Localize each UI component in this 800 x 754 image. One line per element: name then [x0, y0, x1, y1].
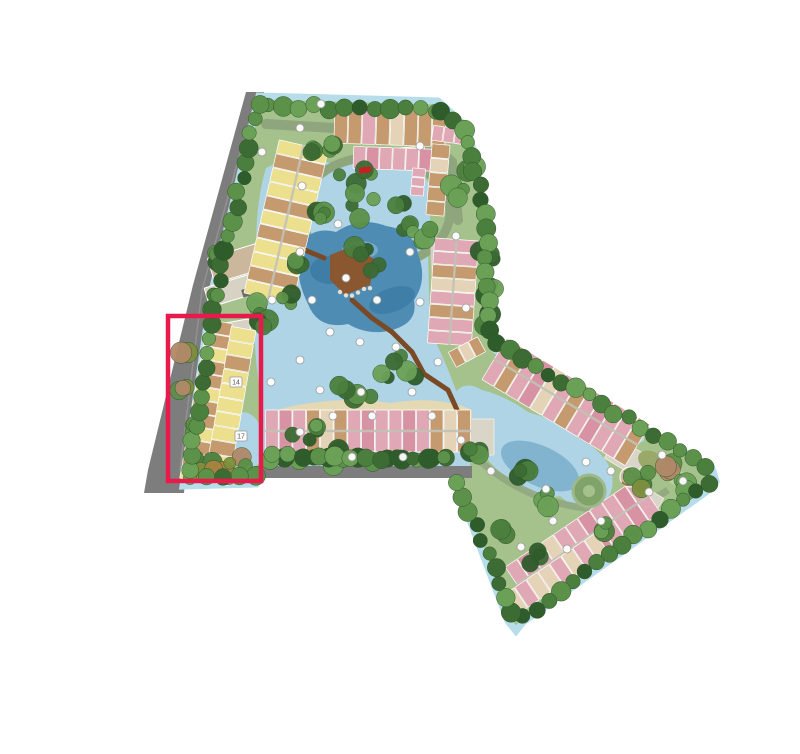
tree	[387, 197, 404, 214]
tree	[406, 452, 420, 466]
unit-marker-dot	[348, 453, 356, 461]
tree	[528, 358, 543, 373]
tree	[380, 99, 400, 119]
unit-marker-label: 14	[232, 379, 240, 386]
tree	[513, 464, 527, 478]
tree	[373, 451, 391, 469]
tree	[175, 380, 191, 396]
tree	[230, 199, 247, 216]
tree	[255, 318, 272, 335]
tree	[214, 273, 229, 288]
unit-marker-dot	[582, 458, 590, 466]
tree	[202, 332, 216, 346]
unit-marker-dot	[392, 343, 400, 351]
site-plan-canvas: 1417	[0, 0, 800, 754]
tree	[294, 449, 312, 467]
tree	[448, 474, 464, 490]
tree	[350, 208, 370, 228]
unit-marker-dot	[416, 142, 424, 150]
tree	[310, 419, 323, 432]
tree	[604, 405, 622, 423]
unit-marker-dot	[368, 412, 376, 420]
unit-marker-dot	[296, 428, 304, 436]
tree	[479, 234, 497, 252]
tree	[398, 100, 413, 115]
tree	[314, 212, 327, 225]
unit-marker-dot	[296, 124, 304, 132]
tree	[448, 188, 468, 208]
tree	[529, 602, 545, 618]
tree	[497, 588, 516, 607]
tree	[529, 543, 546, 560]
tree	[239, 139, 258, 158]
tree	[264, 446, 280, 462]
tree	[357, 449, 375, 467]
tree	[214, 241, 234, 261]
building-unit	[432, 125, 444, 141]
unit-marker-dot	[487, 467, 495, 475]
tree	[491, 520, 511, 540]
unit-marker-dot	[308, 296, 316, 304]
unit-marker-dot	[296, 356, 304, 364]
unit-marker-dot	[645, 488, 653, 496]
tree	[492, 576, 506, 590]
tree	[353, 246, 369, 262]
tree	[640, 465, 655, 480]
unit-marker-dot	[542, 485, 550, 493]
building-unit	[392, 148, 405, 170]
unit-marker-dot	[549, 517, 557, 525]
unit-marker-dot	[607, 467, 615, 475]
unit-marker-dot	[452, 232, 460, 240]
tree	[276, 292, 288, 304]
unit-marker-dot	[373, 296, 381, 304]
roundabout-center	[583, 485, 595, 497]
tree	[461, 135, 475, 149]
tree	[324, 136, 341, 153]
unit-marker-dot	[462, 304, 470, 312]
tree	[701, 475, 718, 492]
tree	[697, 458, 714, 475]
tree	[413, 100, 428, 115]
building-unit	[426, 201, 445, 216]
tree	[367, 192, 381, 206]
tree	[290, 100, 307, 117]
unit-marker-dot	[457, 436, 465, 444]
tree	[238, 171, 252, 185]
unit-marker-dot	[679, 477, 687, 485]
tree	[577, 564, 592, 579]
tree	[345, 184, 364, 203]
unit-marker-dot	[329, 412, 337, 420]
building-unit	[406, 148, 419, 170]
tree	[541, 368, 555, 382]
tree	[537, 496, 558, 517]
unit-marker-dot	[408, 388, 416, 396]
unit-marker-dot	[298, 182, 306, 190]
unit-marker-dot	[434, 358, 442, 366]
building-unit	[410, 186, 424, 196]
site-plan-figure: 1417	[0, 0, 800, 754]
unit-marker-dot	[316, 386, 324, 394]
tree	[655, 456, 676, 477]
unit-marker-dot	[658, 451, 666, 459]
unit-marker-dot	[428, 412, 436, 420]
unit-marker-dot	[416, 298, 424, 306]
building-unit	[430, 158, 449, 173]
tree	[325, 446, 345, 466]
tree	[248, 112, 262, 126]
unit-marker-dot	[357, 388, 365, 396]
tree	[422, 221, 438, 237]
tree	[210, 288, 224, 302]
tree	[280, 446, 296, 462]
unit-marker-dot	[597, 517, 605, 525]
tree	[195, 375, 211, 391]
tree	[437, 451, 450, 464]
tree	[200, 346, 214, 360]
unit-marker-dot	[296, 248, 304, 256]
tree	[251, 95, 269, 113]
building-unit	[379, 147, 392, 169]
tree	[352, 100, 367, 115]
unit-marker-dot	[406, 248, 414, 256]
building-unit	[411, 177, 425, 187]
tree	[688, 484, 703, 499]
tree	[303, 144, 320, 161]
tree	[419, 449, 439, 469]
tree	[473, 533, 487, 547]
tree	[170, 342, 191, 363]
unit-marker-dot	[317, 100, 325, 108]
tree	[566, 378, 586, 398]
tree	[330, 376, 349, 395]
building-unit	[431, 144, 450, 159]
unit-marker-dot	[267, 378, 275, 386]
unit-marker: 17	[235, 431, 247, 441]
unit-marker-dot	[258, 148, 266, 156]
tree	[385, 353, 402, 370]
unit-marker-dot	[517, 543, 525, 551]
tree	[487, 558, 505, 576]
tree	[191, 403, 209, 421]
tree	[483, 547, 497, 561]
unit-marker-dot	[399, 453, 407, 461]
tree	[228, 183, 245, 200]
tree	[363, 263, 379, 279]
unit-marker-dot	[326, 328, 334, 336]
unit-marker-dot	[268, 296, 276, 304]
building-unit	[443, 127, 455, 143]
tree	[224, 457, 236, 469]
tree	[473, 177, 489, 193]
building-unit	[412, 168, 426, 178]
unit-marker-dot	[334, 220, 342, 228]
tree	[673, 444, 687, 458]
unit-marker-dot	[342, 274, 350, 282]
tree	[242, 126, 256, 140]
unit-marker-label: 17	[237, 433, 245, 440]
tree	[194, 389, 210, 405]
tree	[463, 442, 477, 456]
unit-marker-dot	[356, 338, 364, 346]
unit-marker: 14	[230, 377, 242, 387]
tree	[336, 99, 354, 117]
building-row-northeast-pink[interactable]	[410, 168, 425, 196]
tree	[333, 169, 346, 182]
tree	[198, 360, 215, 377]
tree	[622, 410, 637, 425]
unit-marker-dot	[563, 545, 571, 553]
